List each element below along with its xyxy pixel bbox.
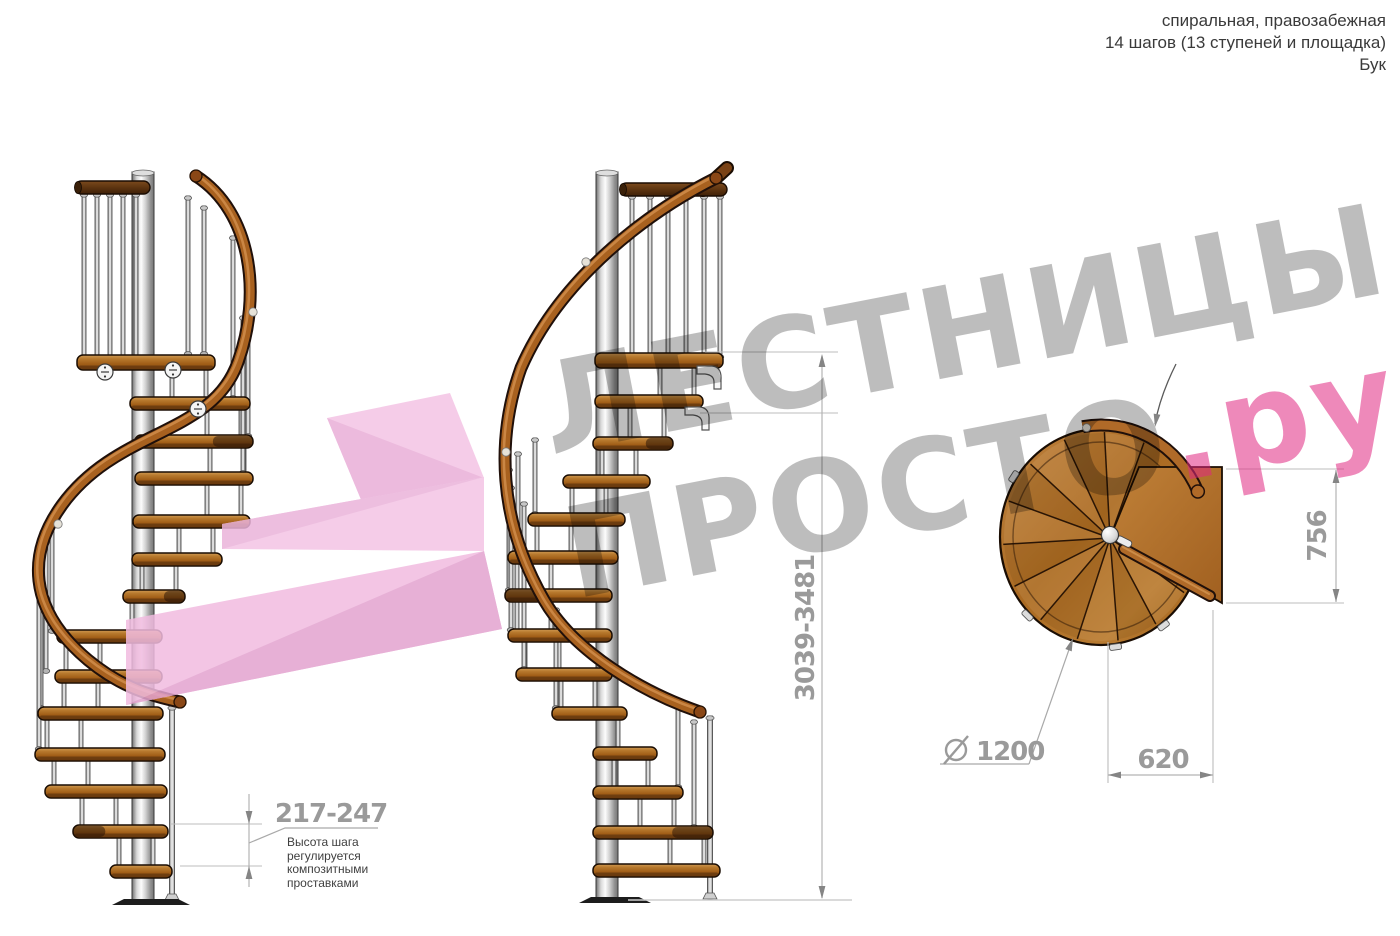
technical-diagram: 3039-3481 217-247 756 620 1200 (0, 0, 1400, 936)
step-count: 14 шагов (13 ступеней и площадка) (1105, 32, 1386, 54)
step-height-note: Высота шага регулируется композитными пр… (287, 836, 368, 890)
dim-step-height: 217-247 (275, 799, 387, 829)
note-line: регулируется (287, 850, 368, 864)
dim-plan-depth: 756 (1303, 510, 1333, 561)
note-line: композитными (287, 863, 368, 877)
center-elevation-view (502, 168, 727, 903)
arrow-facet (222, 477, 484, 551)
dim-total-height: 3039-3481 (791, 555, 821, 702)
material: Бук (1105, 54, 1386, 76)
title-block: спиральная, правозабежная 14 шагов (13 с… (1105, 10, 1386, 76)
dim-diameter: 1200 (976, 737, 1044, 767)
note-line: проставками (287, 877, 368, 891)
drawing-canvas: 3039-3481 217-247 756 620 1200 спиральна… (0, 0, 1400, 936)
plan-view (1000, 364, 1222, 651)
dim-plan-width: 620 (1137, 745, 1188, 775)
note-line: Высота шага (287, 836, 368, 850)
stair-type: спиральная, правозабежная (1105, 10, 1386, 32)
